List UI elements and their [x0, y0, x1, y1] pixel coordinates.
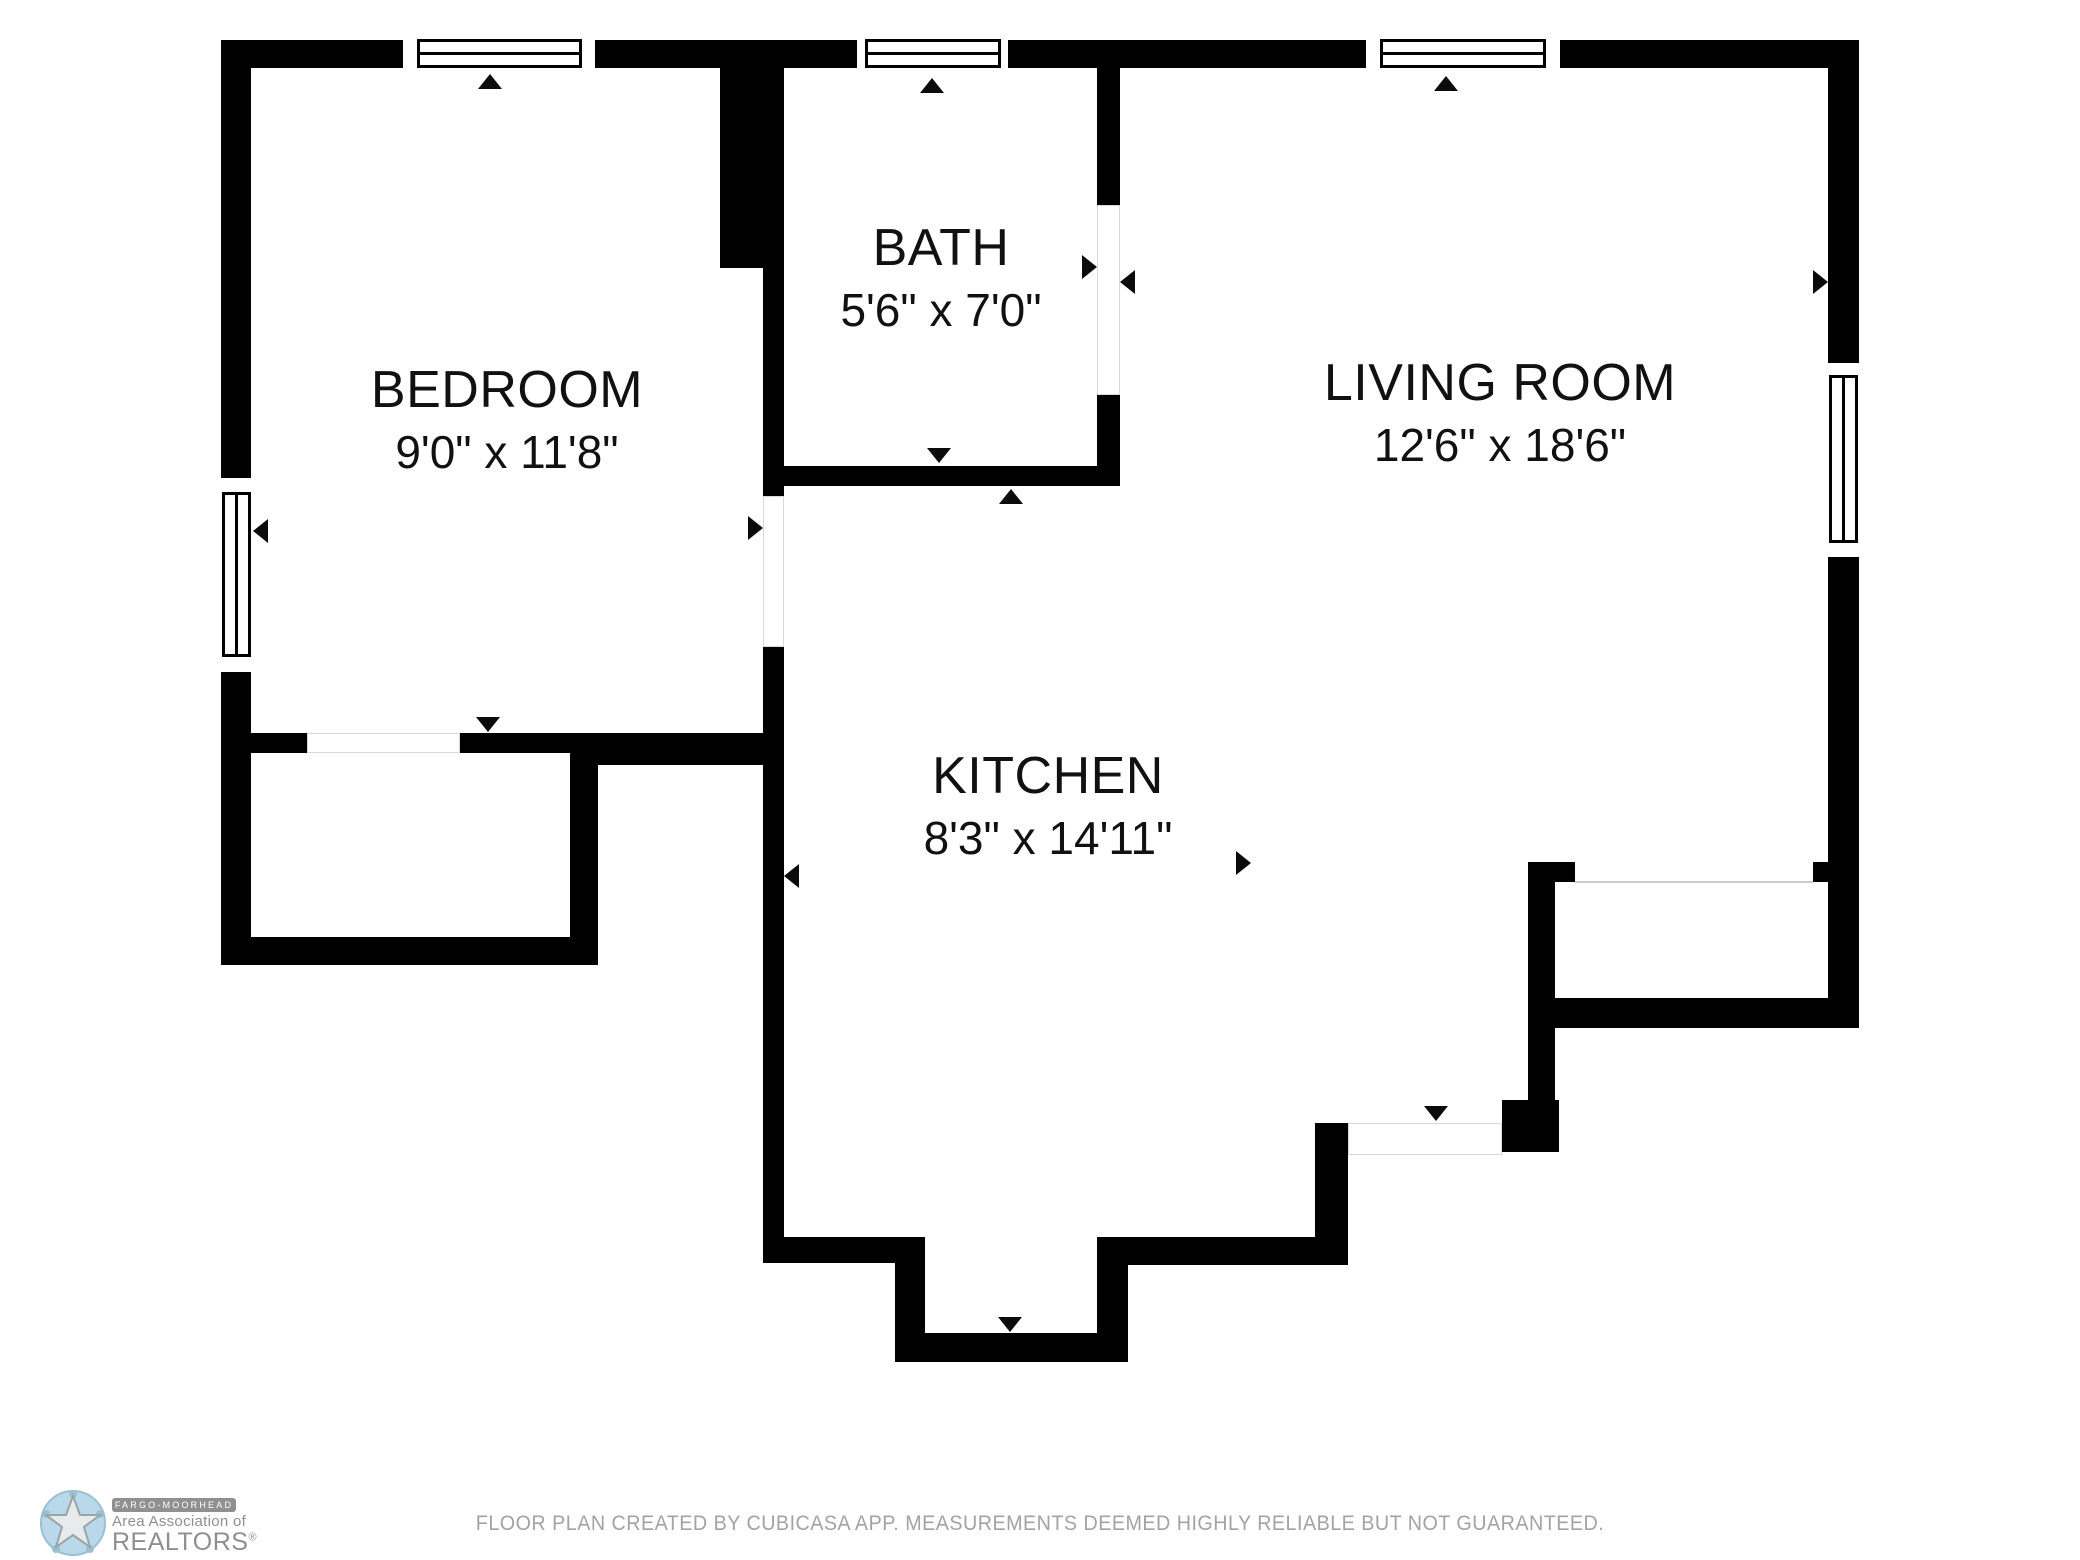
- room-name: LIVING ROOM: [1324, 355, 1676, 412]
- window-arrow-icon: [920, 78, 944, 93]
- window-icon: [865, 52, 1001, 55]
- wall: [763, 68, 784, 496]
- wall: [1828, 557, 1859, 1028]
- wall: [1528, 862, 1575, 882]
- wall: [595, 40, 857, 68]
- door-arrow-icon: [927, 448, 951, 463]
- room-label-kitchen: KITCHEN 8'3" x 14'11": [924, 748, 1173, 864]
- door-arrow-icon: [1424, 1106, 1448, 1121]
- door-arrow-icon: [476, 717, 500, 732]
- wall: [1502, 1100, 1559, 1152]
- wall: [1813, 862, 1828, 882]
- wall: [1097, 68, 1120, 205]
- window-icon: [235, 492, 238, 657]
- window-icon: [1380, 52, 1546, 55]
- wall: [570, 733, 784, 765]
- door-arrow-icon: [998, 1317, 1022, 1332]
- wall: [1528, 862, 1555, 1100]
- wall: [570, 753, 598, 965]
- wall: [763, 647, 784, 1263]
- room-name: KITCHEN: [924, 748, 1173, 805]
- wall: [1097, 395, 1120, 486]
- wall: [460, 733, 570, 753]
- wall: [221, 937, 598, 965]
- room-name: BATH: [840, 220, 1041, 277]
- room-name: BEDROOM: [371, 362, 643, 419]
- room-dimensions: 8'3" x 14'11": [924, 813, 1173, 864]
- window-icon: [1842, 375, 1845, 543]
- window-arrow-icon: [1434, 76, 1458, 91]
- door-arrow-icon: [1120, 270, 1135, 294]
- door-arrow-icon: [784, 864, 799, 888]
- window-icon: [417, 52, 582, 55]
- wall: [1528, 998, 1859, 1028]
- wall: [763, 1237, 925, 1263]
- wall: [221, 672, 251, 965]
- floor-plan-image: BEDROOM 9'0" x 11'8" BATH 5'6" x 7'0" LI…: [0, 0, 2080, 1560]
- room-label-bedroom: BEDROOM 9'0" x 11'8": [371, 362, 643, 478]
- closet-door-opening: [307, 733, 460, 753]
- wall: [221, 733, 307, 753]
- door-arrow-icon: [748, 516, 763, 540]
- window-arrow-icon: [478, 74, 502, 89]
- bath-door-opening: [1097, 205, 1120, 395]
- open-passage-line: [1575, 881, 1813, 883]
- room-dimensions: 12'6" x 18'6": [1324, 420, 1676, 471]
- wall: [895, 1333, 1128, 1362]
- wall: [1315, 1123, 1348, 1265]
- wall: [221, 40, 251, 478]
- door-arrow-icon: [1082, 255, 1097, 279]
- wall: [1097, 1237, 1348, 1265]
- door-arrow-icon: [999, 489, 1023, 504]
- registered-trademark-icon: ®: [248, 1532, 257, 1544]
- entry-door-opening: [1348, 1123, 1502, 1155]
- logo-realtors-word: REALTORS: [112, 1528, 248, 1556]
- wall: [1008, 40, 1366, 68]
- wall: [1828, 40, 1859, 363]
- realtors-association-logo: FARGO-MOORHEAD Area Association of REALT…: [38, 1488, 248, 1560]
- window-arrow-icon: [253, 519, 268, 543]
- room-dimensions: 9'0" x 11'8": [371, 427, 643, 478]
- door-arrow-icon: [1813, 270, 1828, 294]
- room-label-bath: BATH 5'6" x 7'0": [840, 220, 1041, 336]
- bedroom-door-opening: [763, 496, 784, 647]
- door-arrow-icon: [1236, 851, 1251, 875]
- wall: [784, 466, 1120, 486]
- logo-region-name: FARGO-MOORHEAD: [112, 1498, 236, 1512]
- wall: [1560, 40, 1859, 68]
- room-label-living-room: LIVING ROOM 12'6" x 18'6": [1324, 355, 1676, 471]
- starburst-logo-icon: [38, 1488, 108, 1560]
- disclaimer-text: FLOOR PLAN CREATED BY CUBICASA APP. MEAS…: [476, 1512, 1604, 1536]
- room-dimensions: 5'6" x 7'0": [840, 285, 1041, 336]
- logo-realtors-text: REALTORS®: [112, 1530, 248, 1555]
